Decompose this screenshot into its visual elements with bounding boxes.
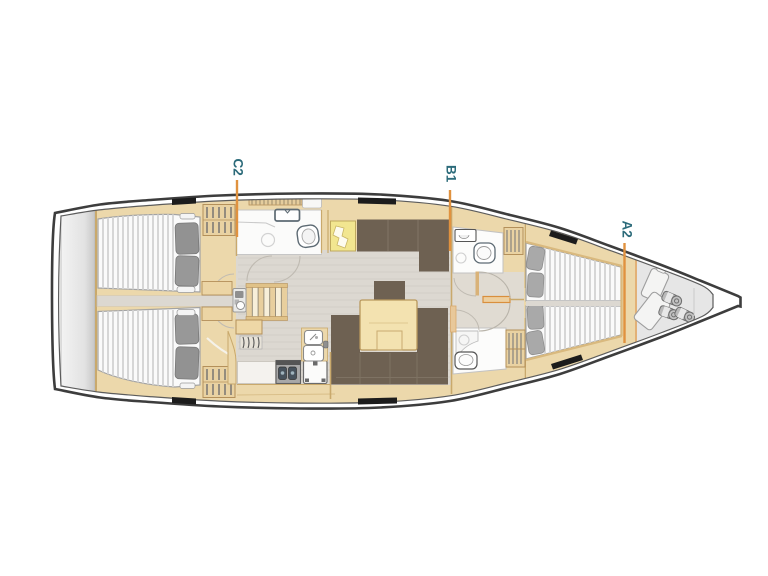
svg-text:C2: C2: [231, 159, 246, 176]
svg-text:A2: A2: [620, 221, 635, 238]
svg-text:B1: B1: [444, 165, 459, 183]
